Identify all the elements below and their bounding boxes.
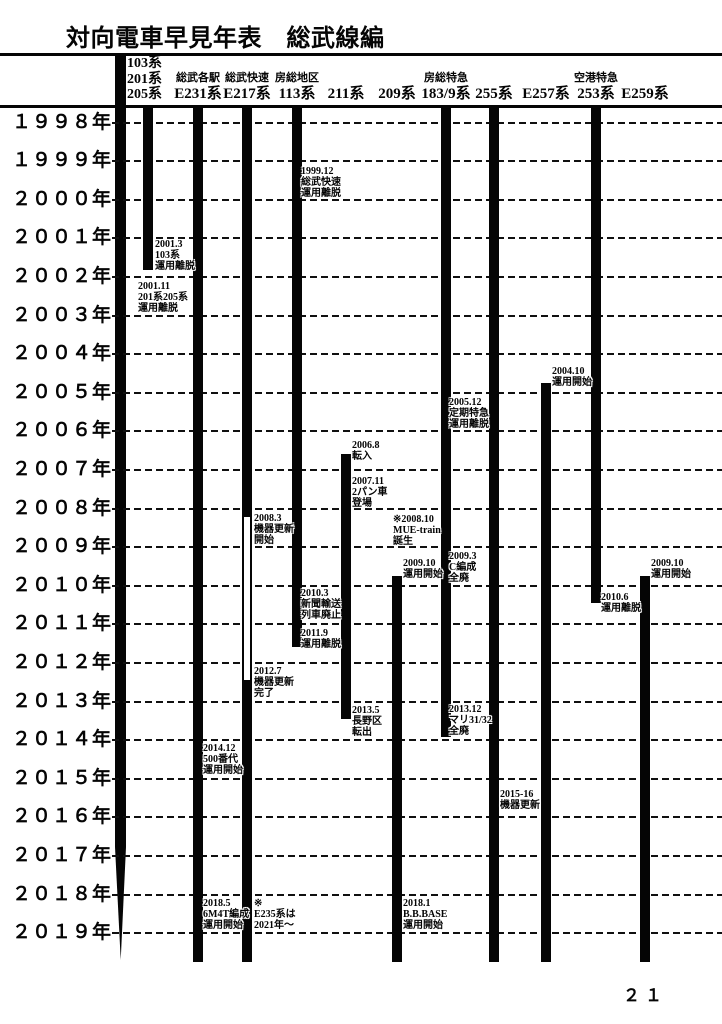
- year-gridline-2000: [112, 199, 722, 201]
- year-label-2009: ２００９年: [12, 535, 112, 559]
- column-header-group-253: 空港特急: [574, 72, 618, 85]
- series-bar-209: [392, 576, 402, 962]
- annotation-line: ※2008.10: [393, 514, 441, 525]
- year-label-2011: ２０１１年: [12, 612, 112, 636]
- annotation-line: 転出: [352, 727, 382, 738]
- annotation-line: 運用離脱: [155, 261, 195, 272]
- annotation-line: 全廃: [449, 726, 492, 737]
- year-gridline-2006: [112, 430, 722, 432]
- event-annotation-12: 2009.10運用開始: [651, 558, 691, 580]
- annotation-line: 機器更新: [500, 800, 540, 811]
- year-label-2000: ２０００年: [12, 188, 112, 212]
- column-header-line: 205系: [127, 87, 162, 103]
- column-header-line: 103系: [127, 56, 162, 72]
- year-label-2008: ２００８年: [12, 497, 112, 521]
- annotation-line: 2007.11: [352, 476, 388, 487]
- annotation-line: 全廃: [449, 573, 477, 584]
- year-label-2018: ２０１８年: [12, 883, 112, 907]
- year-gridline-2010: [112, 585, 722, 587]
- annotation-line: 2001.3: [155, 239, 195, 250]
- annotation-line: 6M4T編成: [203, 909, 249, 920]
- annotation-line: 運用開始: [403, 920, 447, 931]
- year-gridline-2018: [112, 894, 722, 896]
- annotation-line: マリ31/32: [449, 715, 492, 726]
- column-header-e257: E257系: [522, 86, 570, 103]
- event-annotation-4: 2004.10運用開始: [552, 366, 592, 388]
- year-gridline-2016: [112, 816, 722, 818]
- column-header-209: 209系: [378, 86, 416, 103]
- column-header-211: 211系: [328, 86, 365, 103]
- event-annotation-3: 2001.11201系205系運用離脱: [138, 281, 188, 314]
- year-label-1999: １９９９年: [12, 149, 112, 173]
- column-header-e217: E217系: [223, 86, 271, 103]
- column-header-253: 253系: [577, 86, 615, 103]
- annotation-line: 運用開始: [552, 377, 592, 388]
- annotation-line: 2015-16: [500, 789, 540, 800]
- annotation-line: 201系205系: [138, 292, 188, 303]
- annotation-line: 2008.3: [254, 513, 294, 524]
- annotation-line: 2009.10: [403, 558, 443, 569]
- year-gridline-2001: [112, 237, 722, 239]
- year-gridline-2007: [112, 469, 722, 471]
- annotation-line: 500番代: [203, 754, 243, 765]
- event-annotation-19: 2014.12500番代運用開始: [203, 743, 243, 776]
- annotation-line: 2004.10: [552, 366, 592, 377]
- annotation-line: 2011.9: [301, 628, 341, 639]
- annotation-line: MUE-train: [393, 525, 441, 536]
- annotation-line: 運用離脱: [301, 188, 341, 199]
- event-annotation-11: 2009.10運用開始: [403, 558, 443, 580]
- event-annotation-13: 2010.3新聞輸送列車廃止: [301, 588, 341, 621]
- annotation-line: 2013.12: [449, 704, 492, 715]
- year-label-2010: ２０１０年: [12, 574, 112, 598]
- year-gridline-2011: [112, 623, 722, 625]
- column-header-255: 255系: [475, 86, 513, 103]
- event-annotation-5: 2005.12定期特急運用離脱: [449, 397, 489, 430]
- year-gridline-2004: [112, 353, 722, 355]
- year-label-2003: ２００３年: [12, 304, 112, 328]
- annotation-line: 2012.7: [254, 666, 294, 677]
- year-gridline-2013: [112, 701, 722, 703]
- column-header-113: 113系: [279, 86, 316, 103]
- series-bar-e231: [193, 108, 203, 962]
- year-gridline-2002: [112, 276, 722, 278]
- series-bar-255: [489, 108, 499, 962]
- column-header-line: 201系: [127, 72, 162, 88]
- annotation-line: 転入: [352, 451, 380, 462]
- chart-page: 対向電車早見年表 総武線編 １９９８年１９９９年２０００年２００１年２００２年２…: [0, 0, 722, 1024]
- column-header-group-e231: 総武各駅: [176, 72, 220, 85]
- annotation-line: 2009.3: [449, 551, 477, 562]
- series-bar-e217-seg1: [242, 108, 252, 515]
- annotation-line: 2001.11: [138, 281, 188, 292]
- header-rule-bottom: [0, 105, 722, 108]
- year-gridline-2017: [112, 855, 722, 857]
- annotation-line: 登場: [352, 498, 388, 509]
- event-annotation-10: 2009.3C編成全廃: [449, 551, 477, 584]
- year-label-2006: ２００６年: [12, 419, 112, 443]
- event-annotation-22: 2018.56M4T編成運用開始: [203, 898, 249, 931]
- annotation-line: 運用離脱: [601, 603, 641, 614]
- year-label-1998: １９９８年: [12, 111, 112, 135]
- event-annotation-9: ※2008.10MUE-train誕生: [393, 514, 441, 547]
- column-header-group-113: 房総地区: [275, 72, 319, 85]
- annotation-line: 列車廃止: [301, 610, 341, 621]
- annotation-line: 2018.5: [203, 898, 249, 909]
- event-annotation-16: 2012.7機器更新完了: [254, 666, 294, 699]
- series-bar-211: [341, 454, 351, 719]
- year-label-2014: ２０１４年: [12, 728, 112, 752]
- year-label-2001: ２００１年: [12, 226, 112, 250]
- annotation-line: 運用離脱: [449, 419, 489, 430]
- annotation-line: 定期特急: [449, 408, 489, 419]
- event-annotation-8: 2008.3機器更新開始: [254, 513, 294, 546]
- annotation-line: 機器更新: [254, 677, 294, 688]
- year-gridline-1998: [112, 122, 722, 124]
- annotation-line: 運用開始: [203, 765, 243, 776]
- annotation-line: 新聞輸送: [301, 599, 341, 610]
- event-annotation-6: 2006.8転入: [352, 440, 380, 462]
- annotation-line: 運用開始: [651, 569, 691, 580]
- year-label-2007: ２００７年: [12, 458, 112, 482]
- column-header-group-e217: 総武快速: [225, 72, 269, 85]
- annotation-line: 開始: [254, 535, 294, 546]
- event-annotation-15: 2011.9運用離脱: [301, 628, 341, 650]
- annotation-line: ※: [254, 898, 296, 909]
- event-annotation-14: 2010.6運用離脱: [601, 592, 641, 614]
- series-bar-e257: [541, 383, 551, 962]
- year-gridline-1999: [112, 160, 722, 162]
- annotation-line: 2010.3: [301, 588, 341, 599]
- event-annotation-17: 2013.5長野区転出: [352, 705, 382, 738]
- annotation-line: 運用開始: [403, 569, 443, 580]
- annotation-line: 機器更新: [254, 524, 294, 535]
- year-label-2004: ２００４年: [12, 342, 112, 366]
- year-label-2012: ２０１２年: [12, 651, 112, 675]
- series-bar-e259: [640, 576, 650, 962]
- header-rule-top: [0, 53, 722, 56]
- annotation-line: 運用離脱: [138, 303, 188, 314]
- annotation-line: 完了: [254, 688, 294, 699]
- column-header-183-9: 183/9系: [421, 86, 470, 103]
- series-bar-103-201-205: [143, 108, 153, 270]
- year-label-2002: ２００２年: [12, 265, 112, 289]
- annotation-line: C編成: [449, 562, 477, 573]
- page-number: ２１: [623, 981, 667, 1006]
- annotation-line: 2パン車: [352, 487, 388, 498]
- event-annotation-1: 1999.12総武快速運用離脱: [301, 166, 341, 199]
- year-label-2016: ２０１６年: [12, 805, 112, 829]
- annotation-line: 長野区: [352, 716, 382, 727]
- annotation-line: 2009.10: [651, 558, 691, 569]
- annotation-line: 運用離脱: [301, 639, 341, 650]
- year-gridline-2012: [112, 662, 722, 664]
- event-annotation-7: 2007.112パン車登場: [352, 476, 388, 509]
- year-label-2017: ２０１７年: [12, 844, 112, 868]
- annotation-line: 103系: [155, 250, 195, 261]
- column-header-e259: E259系: [621, 86, 669, 103]
- series-bar-253: [591, 108, 601, 603]
- year-label-2019: ２０１９年: [12, 921, 112, 945]
- annotation-line: 2021年～: [254, 920, 296, 931]
- annotation-line: 2005.12: [449, 397, 489, 408]
- year-gridline-2005: [112, 392, 722, 394]
- annotation-line: 2018.1: [403, 898, 447, 909]
- year-gridline-2008: [112, 508, 722, 510]
- annotation-line: 総武快速: [301, 177, 341, 188]
- event-annotation-20: 2015-16機器更新: [500, 789, 540, 811]
- annotation-line: 2010.6: [601, 592, 641, 603]
- column-header-103-201-205: 103系201系205系: [127, 56, 162, 103]
- annotation-line: 1999.12: [301, 166, 341, 177]
- event-annotation-2: 2001.3103系運用離脱: [155, 239, 195, 272]
- event-annotation-18: 2013.12マリ31/32全廃: [449, 704, 492, 737]
- column-header-group-183-9: 房総特急: [424, 72, 468, 85]
- event-annotation-23: ※E235系は2021年～: [254, 898, 296, 931]
- annotation-line: 誕生: [393, 536, 441, 547]
- year-gridline-2014: [112, 739, 722, 741]
- year-gridline-2015: [112, 778, 722, 780]
- chart-title: 対向電車早見年表 総武線編: [66, 18, 385, 53]
- annotation-line: 2014.12: [203, 743, 243, 754]
- year-label-2015: ２０１５年: [12, 767, 112, 791]
- column-header-e231: E231系: [174, 86, 222, 103]
- annotation-line: 運用開始: [203, 920, 249, 931]
- annotation-line: E235系は: [254, 909, 296, 920]
- year-gridline-2003: [112, 315, 722, 317]
- annotation-line: B.B.BASE: [403, 909, 447, 920]
- event-annotation-21: 2018.1B.B.BASE運用開始: [403, 898, 447, 931]
- year-label-2005: ２００５年: [12, 381, 112, 405]
- year-gridline-2019: [112, 932, 722, 934]
- annotation-line: 2013.5: [352, 705, 382, 716]
- year-label-2013: ２０１３年: [12, 690, 112, 714]
- series-bar-e217-seg2: [242, 515, 252, 682]
- annotation-line: 2006.8: [352, 440, 380, 451]
